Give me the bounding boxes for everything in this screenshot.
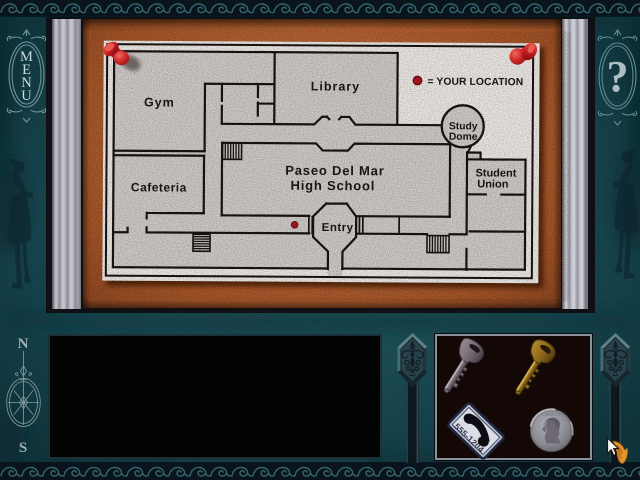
svg-text:Paseo Del Mar: Paseo Del Mar — [285, 163, 384, 179]
svg-text:Entry: Entry — [322, 222, 354, 234]
svg-text:Gym: Gym — [144, 95, 175, 109]
svg-text:N: N — [18, 336, 29, 352]
svg-text:U: U — [21, 88, 32, 104]
svg-text:LIBERTY: LIBERTY — [542, 412, 562, 417]
svg-text:Study: Study — [449, 121, 478, 132]
svg-text:Cafeteria: Cafeteria — [131, 180, 187, 194]
svg-text:?: ? — [607, 52, 629, 101]
svg-text:1996: 1996 — [547, 445, 557, 450]
svg-text:Library: Library — [311, 79, 360, 93]
svg-text:High School: High School — [291, 178, 376, 194]
svg-text:Dome: Dome — [449, 132, 478, 143]
svg-text:Union: Union — [477, 178, 509, 190]
svg-text:S: S — [19, 440, 27, 456]
